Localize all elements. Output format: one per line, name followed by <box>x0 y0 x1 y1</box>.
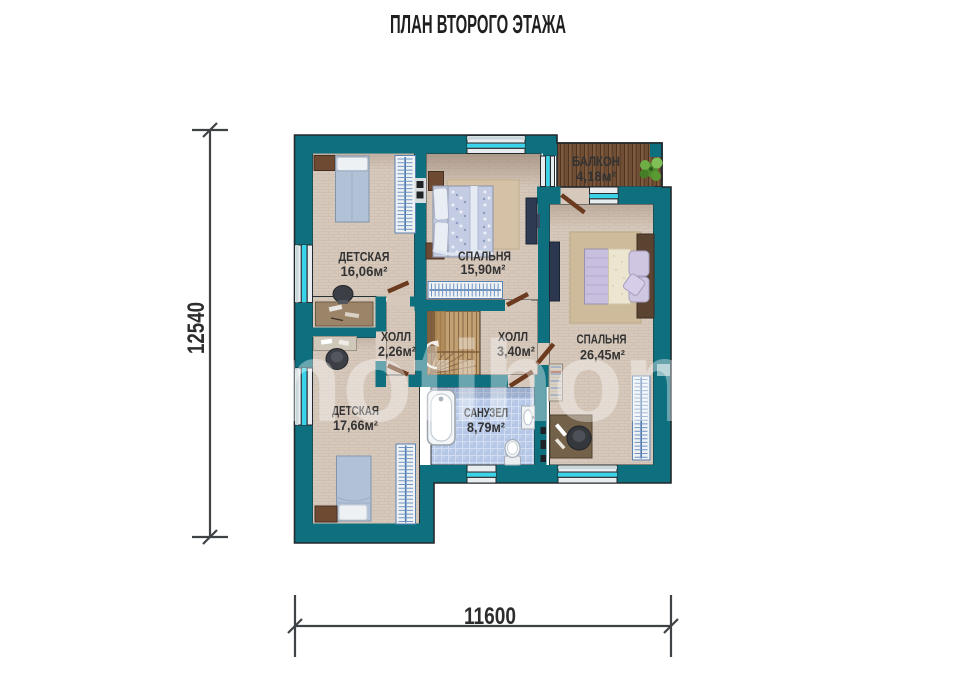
svg-text:12540: 12540 <box>183 302 210 354</box>
svg-text:16,06м²: 16,06м² <box>341 263 388 279</box>
svg-text:15,90м²: 15,90м² <box>461 261 506 277</box>
svg-text:notihome: notihome <box>272 318 789 446</box>
svg-text:4,18м²: 4,18м² <box>576 168 616 184</box>
svg-text:БАЛКОН: БАЛКОН <box>572 154 620 169</box>
svg-text:ПЛАН ВТОРОГО ЭТАЖА: ПЛАН ВТОРОГО ЭТАЖА <box>390 9 566 39</box>
svg-text:11600: 11600 <box>464 603 516 630</box>
svg-text:ДЕТСКАЯ: ДЕТСКАЯ <box>339 249 390 264</box>
